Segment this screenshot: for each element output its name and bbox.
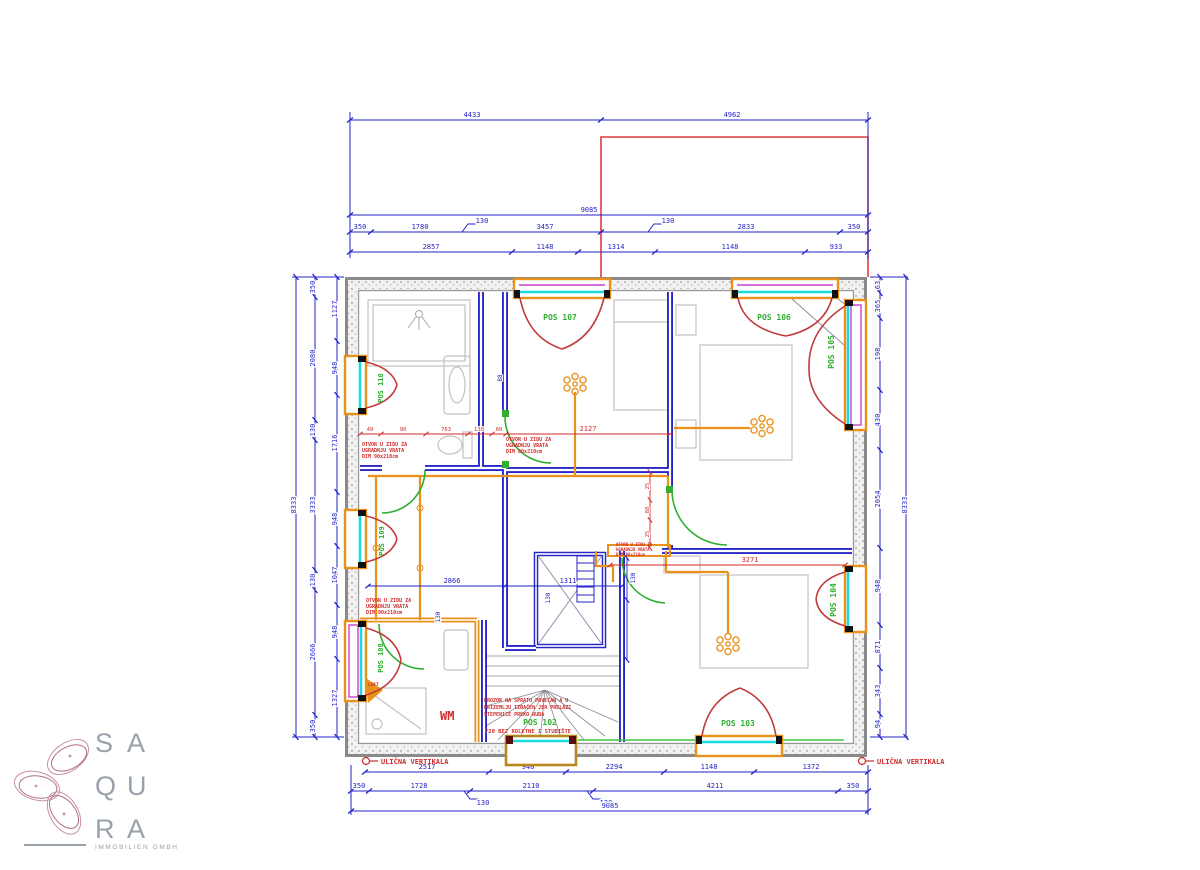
dim-label: 1716 — [331, 435, 339, 452]
washing-machine-label: WM — [440, 709, 454, 723]
dim-labels-bottom: 2517 948 2294 1148 1372 350 1728 130 211… — [353, 763, 860, 810]
dim-label: 1127 — [331, 301, 339, 318]
door-note: DIM 90x210cm — [366, 610, 402, 616]
dim-label: 2080 — [309, 350, 317, 367]
pos-label: POS 103 — [721, 719, 755, 728]
dim-label: 2110 — [523, 782, 540, 790]
dim-label: 1148 — [722, 243, 739, 251]
dim-label: 88 — [645, 507, 651, 514]
dim-label: 871 — [874, 641, 882, 654]
dim-label: 198 — [874, 348, 882, 361]
dim-label: 763 — [441, 427, 451, 433]
pos-label: POS 110 — [377, 373, 385, 403]
pos-label: POS 109 — [378, 526, 386, 556]
dim-label: 8333 — [901, 497, 909, 514]
dim-label: 49 — [367, 427, 374, 433]
dim-label: 948 — [331, 513, 339, 526]
dim-label: 25 — [645, 531, 651, 538]
logo-letter: U — [127, 771, 147, 801]
dim-label: 130 — [435, 611, 442, 622]
dim-label: 350 — [848, 223, 861, 231]
street-riser-label: ULIČNA VERTIKALA — [381, 757, 449, 766]
dim-label: 3271 — [742, 556, 759, 564]
dim-label: 9085 — [602, 802, 619, 810]
door-note: DIM 80x210cm — [616, 552, 645, 557]
dim-label: 1311 — [560, 577, 577, 585]
dim-label: 25 — [645, 483, 651, 490]
dim-label: 2666 — [309, 644, 317, 661]
logo-letter: A — [127, 728, 145, 758]
dim-label: 2054 — [874, 491, 882, 508]
dim-label: 948 — [331, 626, 339, 639]
stair-note-f20: F20 BEZ ROLETNE I STUBIŠTE — [485, 728, 571, 735]
dim-label: 130 — [309, 574, 317, 587]
dim-label: 4211 — [707, 782, 724, 790]
dim-label: 130 — [630, 572, 637, 583]
dim-label: 1327 — [331, 690, 339, 707]
dim-label: 343 — [874, 685, 882, 698]
dim-label: 948 — [874, 580, 882, 593]
ladder — [577, 556, 594, 602]
dim-label: 88 — [497, 374, 504, 382]
dim-label: 63 — [874, 281, 882, 289]
dim-label: 2866 — [444, 577, 461, 585]
pos-label: POS 107 — [543, 313, 577, 322]
dim-label: 350 — [354, 223, 367, 231]
dim-label: 3457 — [537, 223, 554, 231]
pos-label: POS 105 — [827, 335, 836, 369]
pos-label: POS 104 — [829, 583, 838, 617]
dim-label: 1148 — [701, 763, 718, 771]
pos-label: POS 108 — [377, 643, 385, 673]
pos-label: POS 106 — [757, 313, 791, 322]
logo-letter: A — [127, 814, 145, 844]
dim-label: 60 — [496, 427, 503, 433]
logo-subtitle: IMMOBILIEN GMBH — [95, 844, 179, 851]
dim-label: 1372 — [803, 763, 820, 771]
logo-letter: S — [95, 728, 113, 758]
floorplan-page: 4433 4962 9085 350 1780 130 3457 130 283… — [0, 0, 1200, 870]
dim-label: 350 — [309, 281, 317, 294]
logo: S A Q U R A IMMOBILIEN GMBH — [11, 728, 178, 851]
dim-label: 4962 — [724, 111, 741, 119]
dim-label: 8333 — [290, 497, 298, 514]
logo-letter: R — [95, 814, 115, 844]
dim-label: 1047 — [331, 567, 339, 584]
dim-label: 3333 — [309, 497, 317, 514]
dim-label: 130 — [476, 217, 489, 225]
dim-label: 350 — [353, 782, 366, 790]
dim-label: 130 — [477, 799, 490, 807]
dim-label: 933 — [830, 243, 843, 251]
logo-letter: Q — [95, 771, 116, 801]
dim-label: 2833 — [738, 223, 755, 231]
door-note: DIM 80x210cm — [506, 449, 542, 455]
plan-interior — [348, 280, 864, 754]
dim-label: 350 — [309, 720, 317, 733]
floorplan-drawing: 4433 4962 9085 350 1780 130 3457 130 283… — [0, 0, 1200, 870]
dim-labels-top: 4433 4962 9085 350 1780 130 3457 130 283… — [354, 111, 861, 251]
logo-flower-icon — [11, 732, 95, 840]
dim-label: 1728 — [411, 782, 428, 790]
dim-label: 9085 — [581, 206, 598, 214]
dim-label: 2127 — [580, 425, 597, 433]
dim-labels-right: 63 365 198 430 2054 948 871 343 94 8333 — [874, 281, 909, 728]
stair-note: PRIZEMLJU IZBAČEN JER PRELAZI — [484, 704, 571, 711]
dim-label: 130 — [309, 424, 317, 437]
pos-label: POS 102 — [523, 718, 557, 727]
dim-label: 1780 — [412, 223, 429, 231]
dim-label: 948 — [331, 362, 339, 375]
dim-label: 130 — [474, 427, 484, 433]
dim-label: 1148 — [537, 243, 554, 251]
stair-note: PROZOR NA SPRATU POVEĆAN A U — [484, 697, 568, 704]
dim-label: 94 — [874, 720, 882, 728]
dim-label: 130 — [545, 592, 552, 603]
dim-label: 4433 — [464, 111, 481, 119]
dim-label: 90 — [400, 427, 407, 433]
street-riser-left: ULIČNA VERTIKALA — [363, 757, 450, 766]
dim-label: 2857 — [423, 243, 440, 251]
street-riser-right: ULIČNA VERTIKALA — [859, 757, 946, 766]
dim-label: 2294 — [606, 763, 623, 771]
roof-projection-outline — [601, 137, 868, 277]
street-riser-label: ULIČNA VERTIKALA — [877, 757, 945, 766]
dim-label: 365 — [874, 300, 882, 313]
dim-label: 350 — [847, 782, 860, 790]
dim-label: 430 — [874, 414, 882, 427]
dim-label: 130 — [662, 217, 675, 225]
window-pos102 — [506, 736, 576, 765]
dim-label: 1314 — [608, 243, 625, 251]
vent-label: LUFT — [368, 682, 379, 688]
door-note: DIM 90x210cm — [362, 454, 398, 460]
